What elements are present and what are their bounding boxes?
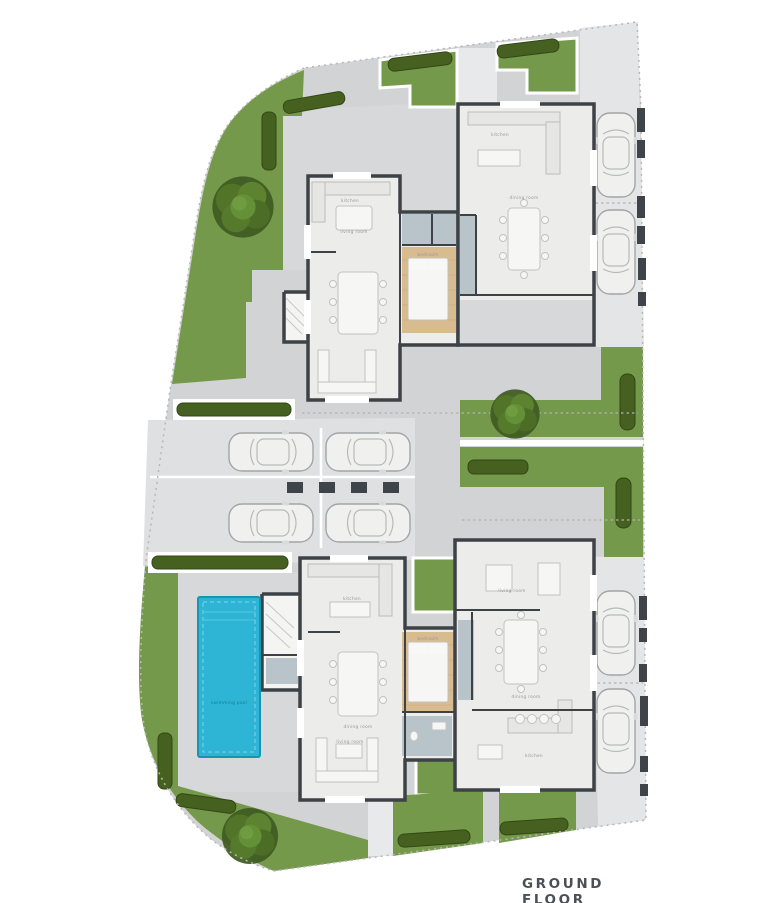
room-label: bedroom — [417, 636, 438, 642]
house-top-right: kitchen dining room — [458, 101, 597, 345]
tree — [490, 389, 539, 438]
car — [229, 502, 313, 545]
armchair — [538, 563, 560, 595]
coffee-table — [336, 744, 362, 758]
room-label: living room — [340, 229, 367, 235]
hedge-row — [262, 112, 276, 170]
kitchen-island — [478, 745, 502, 759]
tree — [222, 808, 278, 864]
hedge-row — [177, 403, 291, 416]
car — [326, 502, 410, 545]
pillow — [410, 261, 427, 270]
table — [336, 206, 372, 230]
room-label: kitchen — [341, 198, 359, 204]
sink — [432, 722, 446, 730]
dining-table — [508, 208, 540, 270]
kitchen-counter — [379, 564, 392, 616]
room-label: kitchen — [491, 132, 509, 138]
car — [229, 431, 313, 474]
room-label: dining room — [511, 694, 540, 700]
terrace — [460, 300, 592, 343]
kitchen-island — [478, 150, 520, 166]
pillow — [429, 645, 446, 654]
room-label: dining room — [509, 195, 538, 201]
car — [595, 689, 638, 773]
kitchen-counter — [312, 182, 325, 222]
lawn-gap — [460, 440, 643, 446]
room-label: bedroom — [417, 252, 438, 258]
bathroom — [266, 658, 298, 684]
house-bottom-right: living room dining room kitchen — [455, 540, 597, 793]
armchair — [486, 565, 512, 591]
dining-table — [338, 272, 378, 334]
car — [595, 210, 638, 294]
hedge-row — [158, 733, 172, 789]
car — [326, 431, 410, 474]
room-label: kitchen — [343, 596, 361, 602]
hedge-row — [468, 460, 528, 474]
walkway-top — [457, 48, 497, 106]
pool-label: swimming pool — [211, 700, 247, 706]
room-label: kitchen — [525, 753, 543, 759]
toilet — [410, 731, 418, 741]
tree — [212, 176, 273, 237]
bathroom — [402, 214, 456, 245]
pillow — [429, 261, 446, 270]
plan-title: GROUND FLOOR — [522, 876, 672, 903]
room-label: living room — [498, 588, 525, 594]
swimming-pool: swimming pool — [198, 597, 260, 757]
car — [595, 113, 638, 197]
room-label: dining room — [343, 724, 372, 730]
bathroom — [460, 215, 476, 295]
hedge-row — [620, 374, 635, 430]
lawn-center-1 — [413, 558, 460, 612]
kitchen-island — [330, 602, 370, 617]
room-label: living room — [336, 739, 363, 745]
dining-table — [504, 620, 538, 684]
hedge-row — [152, 556, 288, 569]
site-plan-canvas: living room kitchen bedroom kitchen dini… — [0, 0, 768, 903]
floor-plan: living room kitchen bedroom kitchen dini… — [0, 0, 768, 903]
car — [595, 591, 638, 675]
kitchen-counter — [546, 122, 560, 174]
pillow — [410, 645, 427, 654]
dining-table — [338, 652, 378, 716]
